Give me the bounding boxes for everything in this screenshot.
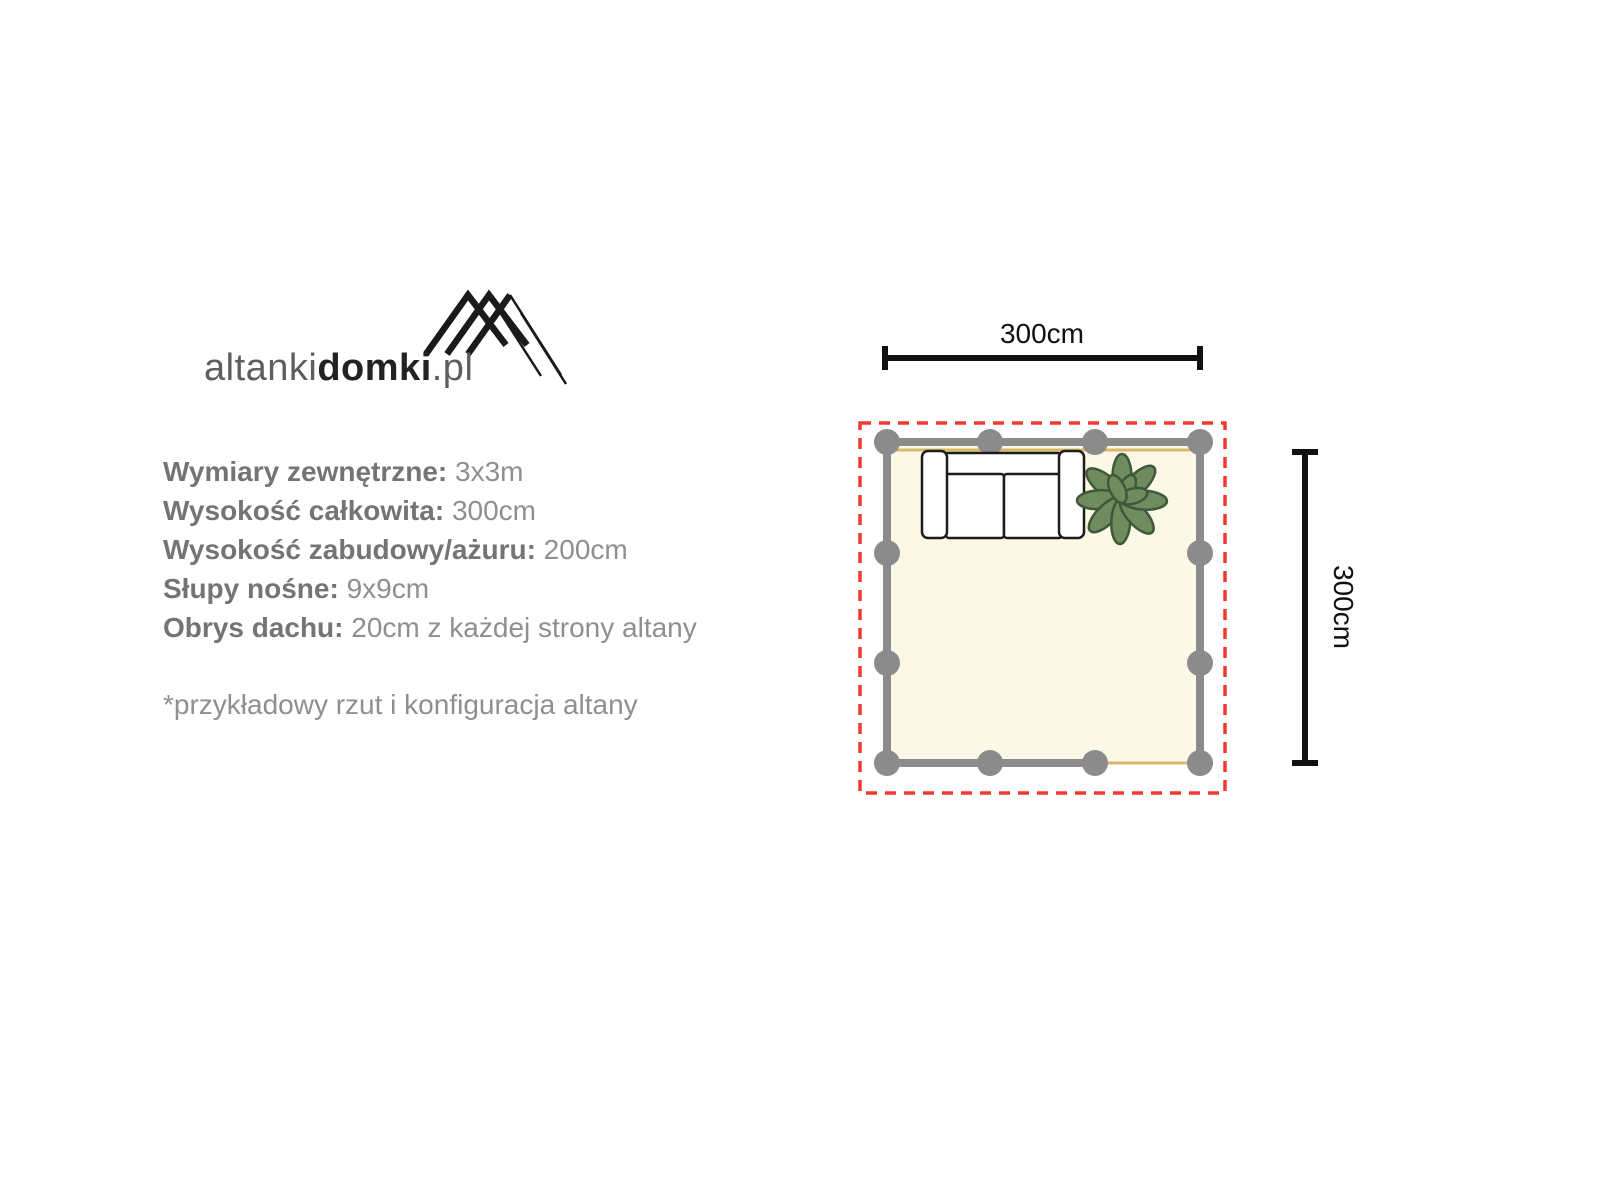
spec-label: Obrys dachu: <box>163 612 343 643</box>
post <box>977 750 1003 776</box>
post <box>977 429 1003 455</box>
logo-wordmark: altankidomki.pl <box>204 349 473 387</box>
spec-label: Wysokość zabudowy/ażuru: <box>163 534 536 565</box>
plant <box>1077 454 1168 544</box>
spec-posts: Słupy nośne: 9x9cm <box>163 569 711 608</box>
spec-label: Wysokość całkowita: <box>163 495 444 526</box>
post <box>1187 750 1213 776</box>
spec-outer-dimensions: Wymiary zewnętrzne: 3x3m <box>163 452 711 491</box>
height-dimension-label: 300cm <box>1328 565 1359 649</box>
spec-value: 20cm z każdej strony altany <box>351 612 697 643</box>
logo-text-regular: altanki <box>204 347 317 389</box>
post <box>1187 650 1213 676</box>
spec-roof-outline: Obrys dachu: 20cm z każdej strony altany <box>163 608 711 647</box>
sofa <box>922 451 1084 538</box>
spec-value: 300cm <box>452 495 536 526</box>
post <box>1082 429 1108 455</box>
post <box>874 750 900 776</box>
spec-enclosure-height: Wysokość zabudowy/ażuru: 200cm <box>163 530 711 569</box>
post <box>1187 429 1213 455</box>
spec-total-height: Wysokość całkowita: 300cm <box>163 491 711 530</box>
spec-value: 9x9cm <box>347 573 429 604</box>
logo-text-bold: domki <box>317 347 431 389</box>
post <box>874 429 900 455</box>
footnote: *przykładowy rzut i konfiguracja altany <box>163 685 711 724</box>
logo-text-suffix: .pl <box>432 347 474 389</box>
sofa-cushion <box>946 474 1004 538</box>
spec-list: Wymiary zewnętrzne: 3x3m Wysokość całkow… <box>163 452 711 724</box>
spec-value: 3x3m <box>455 456 523 487</box>
post <box>1187 540 1213 566</box>
sofa-backrest <box>944 453 1062 475</box>
post <box>1082 750 1108 776</box>
spec-value: 200cm <box>544 534 628 565</box>
spec-label: Wymiary zewnętrzne: <box>163 456 447 487</box>
spec-label: Słupy nośne: <box>163 573 339 604</box>
post <box>874 650 900 676</box>
floor-plan: 300cm 300cm <box>840 300 1360 820</box>
sofa-cushion <box>1004 474 1062 538</box>
sofa-armrest <box>922 451 947 538</box>
post <box>874 540 900 566</box>
width-dimension-label: 300cm <box>1000 318 1084 349</box>
page: altankidomki.pl Wymiary zewnętrzne: 3x3m… <box>0 0 1600 1200</box>
